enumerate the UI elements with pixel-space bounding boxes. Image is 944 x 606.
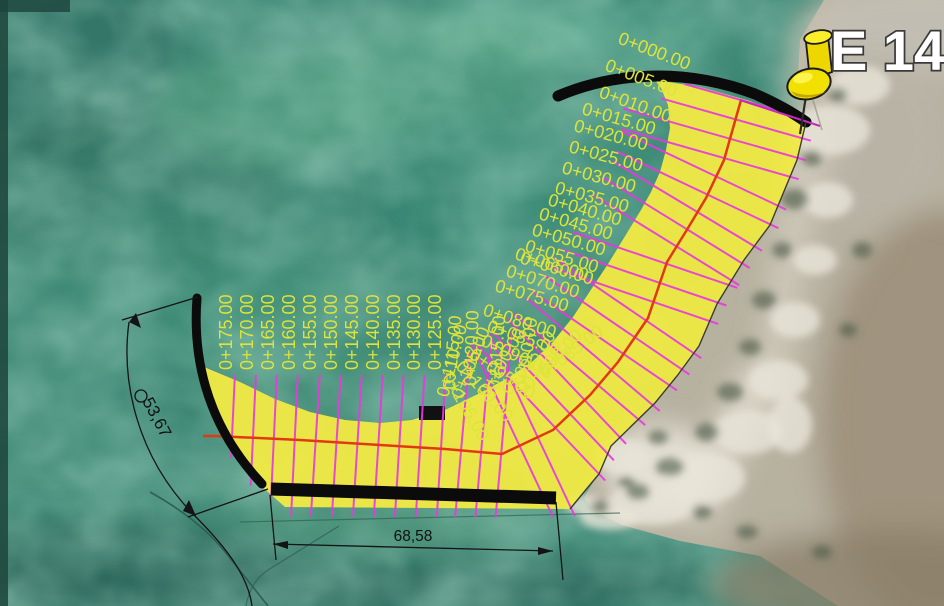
svg-text:0+135.00: 0+135.00 — [384, 294, 404, 370]
svg-text:0+175.00: 0+175.00 — [216, 294, 236, 370]
svg-text:0+160.00: 0+160.00 — [279, 294, 299, 370]
svg-text:E 14: E 14 — [830, 19, 944, 82]
svg-text:0+145.00: 0+145.00 — [342, 294, 362, 370]
svg-text:68,58: 68,58 — [394, 528, 433, 545]
svg-text:0+140.00: 0+140.00 — [363, 294, 383, 370]
svg-text:0+155.00: 0+155.00 — [300, 294, 320, 370]
svg-text:0+125.00: 0+125.00 — [425, 294, 445, 370]
svg-text:0+150.00: 0+150.00 — [321, 294, 341, 370]
svg-text:0+165.00: 0+165.00 — [258, 294, 278, 370]
svg-text:0+130.00: 0+130.00 — [404, 294, 424, 370]
svg-text:0+170.00: 0+170.00 — [237, 294, 257, 370]
